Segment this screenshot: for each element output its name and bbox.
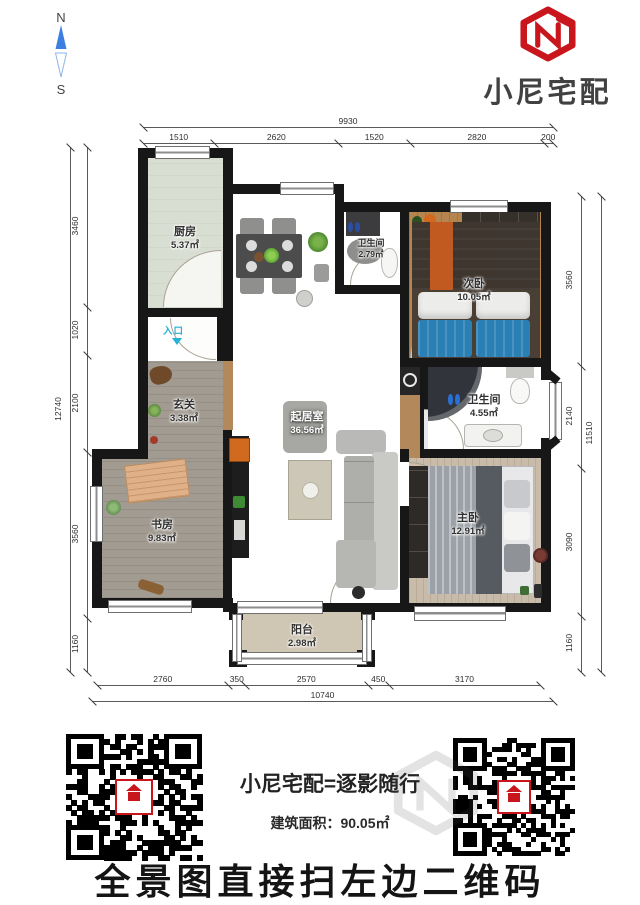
armchair [336,430,386,454]
wall [541,202,551,380]
dining-window [280,182,334,195]
bath-right-toilet [510,378,530,404]
hall-plant [148,404,161,417]
room-area: 10.05㎡ [457,292,490,304]
master-wardrobe [409,466,429,578]
slippers-icon [355,222,360,232]
dim-value: 2760 [141,674,185,684]
hall-opening-floor [223,357,233,430]
master-window [414,606,506,621]
footer-area-label: 建筑面积： [270,815,340,831]
bath-right-basin [483,429,503,442]
wall [138,308,148,453]
room-name: 厨房 [174,226,196,238]
wall [138,148,148,317]
wall [335,285,409,294]
balcony-window-right [362,614,372,662]
plate [282,240,293,251]
plate [246,240,257,251]
dim-line [87,147,88,672]
room-name: 阳台 [291,624,313,636]
compass-north-label: N [46,10,76,25]
slippers-icon [348,222,353,232]
tv-decor-green [233,496,245,508]
compass: N S [46,10,76,97]
dim-value: 11510 [584,411,594,455]
balcony-window-left [232,614,242,662]
plate [282,261,293,272]
master-pillow [504,480,530,508]
wall [400,506,409,612]
floorplan-page: { "compass": {"north": "N", "south": "S"… [0,0,640,905]
study-side-window [90,486,103,542]
room-label-study: 书房9.83㎡ [148,519,176,545]
dim-line [581,196,582,672]
plate [246,261,257,272]
master-decor [520,586,529,595]
wall [138,308,233,317]
master-pillow [504,544,530,572]
table-plant [264,248,279,263]
room-label-living_room: 起居室36.56㎡ [290,411,323,437]
dim-value: 2100 [70,381,80,425]
wall [223,148,233,317]
dim-value: 1160 [70,622,80,666]
plant-pot [308,232,328,252]
tv-decor-orange [229,438,250,462]
dim-value: 1520 [352,132,396,142]
footer-area-value: 90.05㎡ [340,815,389,831]
dim-value: 2140 [564,394,574,438]
room-label-bedroom_second: 次卧10.05㎡ [457,278,490,304]
room-area: 4.55㎡ [468,408,501,420]
coffee-table-tray [302,482,319,499]
wall [400,358,551,367]
room-label-kitchen: 厨房5.37㎡ [171,226,199,252]
slippers-icon [455,394,460,405]
dim-value: 3460 [70,204,80,248]
bay-window [549,382,562,440]
dim-value: 450 [356,674,400,684]
table-decor [254,252,264,262]
dim-value: 1510 [157,132,201,142]
compass-south-label: S [46,82,76,97]
dim-value: 10740 [301,690,345,700]
study-window [108,600,192,613]
dim-line [97,685,540,686]
master-pillow [504,512,530,540]
dim-value: 12740 [53,387,63,431]
dim-value: 2620 [254,132,298,142]
room-name: 玄关 [173,399,195,411]
dim-line [92,701,553,702]
room-label-master_bedroom: 主卧12.91㎡ [451,512,484,538]
brand-name: 小尼宅配 [455,69,640,111]
dim-value: 3560 [564,258,574,302]
qr-center-seal [497,780,531,813]
room-name: 起居室 [291,411,324,423]
round-stool [296,290,313,307]
room-name: 书房 [151,519,173,531]
room-name: 卫生间 [468,394,501,406]
dim-value: 200 [526,132,570,142]
dim-value: 2570 [284,674,328,684]
watermark-cube-icon [388,748,484,838]
room-area: 5.37㎡ [171,240,199,252]
dim-value: 3170 [442,674,486,684]
dim-line [601,196,602,672]
brand-cube-icon [517,6,579,62]
room-name: 主卧 [457,512,479,524]
dim-line [143,143,553,144]
study-desk [124,458,190,503]
room-label-bath_right: 卫生间4.55㎡ [468,394,501,420]
room-label-hallway: 玄关3.38㎡ [170,399,198,425]
room-label-balcony: 阳台2.98㎡ [288,624,316,650]
brand-logo: 小尼宅配 [455,6,640,111]
tv-decor-white [234,520,245,540]
wall [335,202,344,294]
bed-second-runner [430,222,453,290]
room-area: 2.79㎡ [357,249,384,260]
wall [541,438,551,612]
slippers-icon [448,394,453,405]
room-name: 次卧 [463,278,485,290]
room-area: 12.91㎡ [451,526,484,538]
room-area: 3.38㎡ [170,413,198,425]
dim-value: 1020 [70,308,80,352]
compass-needle-icon [53,25,69,77]
living-window [237,601,323,614]
dim-line [143,127,553,128]
dining-chair [272,276,296,294]
wall [420,449,551,458]
study-plant [106,500,121,515]
kitchen-window [155,146,210,159]
qr-center-seal [115,779,153,814]
dim-value: 1160 [564,621,574,665]
floor-lamp [352,586,365,599]
master-decor [534,584,542,598]
hall-decor-red [150,436,158,444]
bed-second-quilt [476,320,530,357]
wall [217,317,233,361]
qr-code-left [66,734,202,860]
bath-right-toilet-tank [506,367,534,378]
dim-value: 2820 [455,132,499,142]
dining-chair [240,276,264,294]
room-label-bath_top: 卫生间2.79㎡ [357,238,384,260]
washing-machine-door [403,373,417,387]
wall [400,449,409,462]
room-area: 36.56㎡ [290,425,323,437]
wall [335,202,550,212]
dim-value: 9930 [326,116,370,126]
entrance-label: 入口 [163,323,184,337]
dim-value: 3090 [564,520,574,564]
room-area: 2.98㎡ [288,638,316,650]
master-rug-dot [533,548,548,563]
side-stool [314,264,329,282]
room-area: 9.83㎡ [148,533,176,545]
balcony-window-bottom [237,652,367,665]
sofa-chaise [336,540,376,588]
dim-value: 3560 [70,512,80,556]
entrance-arrow-icon [172,338,182,345]
bed-second-quilt [418,320,472,357]
footer-cta: 全景图直接扫左边二维码 [0,853,640,905]
dim-value: 350 [215,674,259,684]
room-name: 卫生间 [357,238,384,248]
